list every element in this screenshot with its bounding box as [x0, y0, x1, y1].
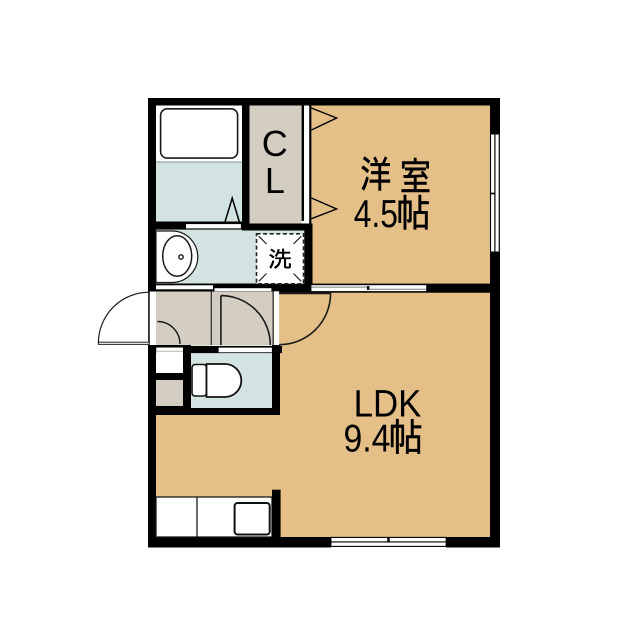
svg-text:4.5: 4.5: [354, 193, 398, 236]
svg-text:L: L: [265, 160, 285, 201]
svg-text:9.4: 9.4: [344, 417, 391, 460]
svg-text:C: C: [262, 123, 288, 164]
